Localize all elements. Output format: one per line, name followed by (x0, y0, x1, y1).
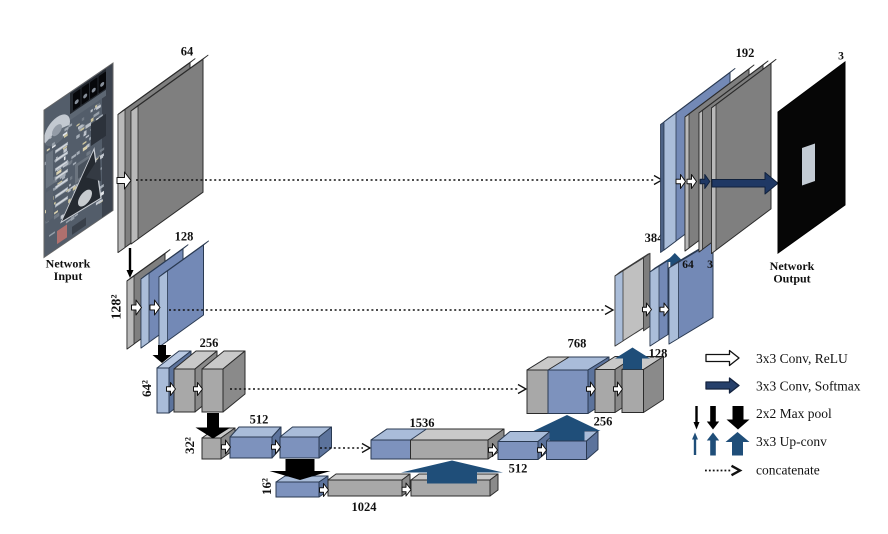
svg-text:64: 64 (181, 45, 194, 59)
svg-text:1536: 1536 (410, 416, 435, 430)
svg-text:64²: 64² (139, 380, 154, 397)
svg-text:512: 512 (250, 413, 269, 427)
svg-text:512: 512 (509, 462, 528, 476)
svg-text:concatenate: concatenate (756, 463, 820, 478)
svg-text:2x2 Max pool: 2x2 Max pool (756, 406, 832, 421)
svg-text:16²: 16² (259, 478, 274, 495)
svg-text:3x3 Up-conv: 3x3 Up-conv (756, 434, 827, 449)
svg-text:256: 256 (200, 336, 219, 350)
svg-text:64: 64 (682, 259, 694, 271)
svg-text:3x3 Conv, Softmax: 3x3 Conv, Softmax (756, 379, 861, 394)
svg-text:3x3 Conv, ReLU: 3x3 Conv, ReLU (756, 351, 848, 366)
svg-text:32²: 32² (182, 437, 197, 454)
svg-text:128: 128 (649, 347, 668, 361)
svg-text:NetworkOutput: NetworkOutput (770, 259, 815, 286)
svg-text:768: 768 (568, 337, 587, 351)
svg-text:3: 3 (838, 51, 844, 63)
svg-text:128²: 128² (110, 294, 125, 319)
svg-text:3: 3 (707, 259, 713, 271)
svg-text:128: 128 (175, 230, 194, 244)
svg-text:192: 192 (736, 46, 755, 60)
svg-text:256: 256 (594, 415, 613, 429)
svg-text:1024: 1024 (352, 500, 378, 514)
